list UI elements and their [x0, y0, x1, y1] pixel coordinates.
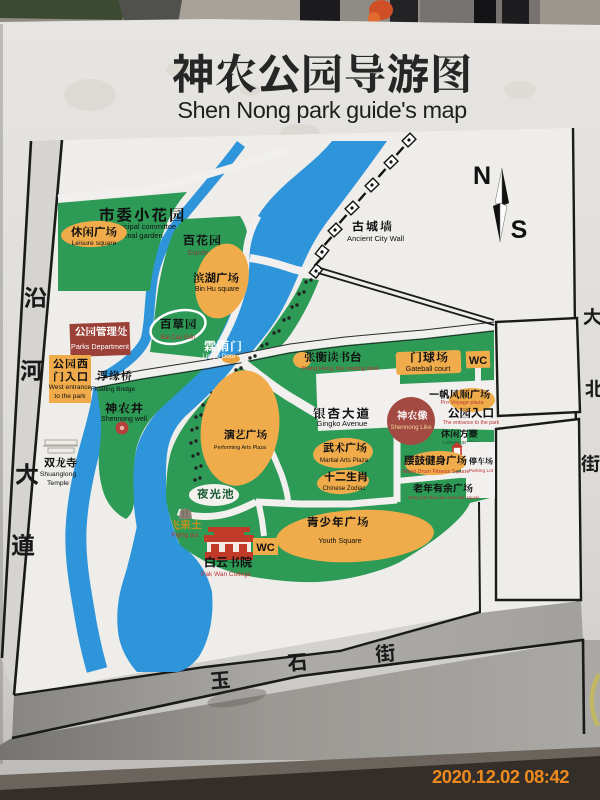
svg-text:Bai Cao Gdn: Bai Cao Gdn — [161, 335, 195, 341]
svg-text:Shuanglong: Shuanglong — [40, 471, 77, 478]
svg-text:Waist Drum Fitness Square: Waist Drum Fitness Square — [402, 469, 469, 475]
svg-text:Martial Arts Plaza: Martial Arts Plaza — [320, 457, 369, 464]
svg-text:Gingko Avenue: Gingko Avenue — [317, 419, 368, 428]
svg-text:Floating Bridge: Floating Bridge — [91, 386, 136, 393]
svg-text:Chinese Zodiac: Chinese Zodiac — [323, 485, 366, 492]
svg-text:to the park: to the park — [54, 393, 86, 400]
svg-text:Flying out: Flying out — [172, 532, 199, 539]
svg-text:smal garden: smal garden — [121, 231, 162, 240]
svg-text:Zhang Heng, the reading desk: Zhang Heng, the reading desk — [301, 366, 379, 372]
svg-text:2020.12.02 08:42: 2020.12.02 08:42 — [432, 766, 569, 787]
svg-text:Gateball court: Gateball court — [406, 364, 451, 373]
svg-text:Entry year there are more than: Entry year there are more than square — [409, 495, 481, 500]
svg-text:N: N — [473, 162, 491, 190]
svg-text:Bin Hu square: Bin Hu square — [195, 286, 239, 293]
svg-text:Ancient City Wall: Ancient City Wall — [347, 234, 404, 243]
svg-text:Parking Lot: Parking Lot — [469, 468, 494, 474]
svg-text:The entrance to the park: The entrance to the park — [443, 420, 500, 426]
svg-text:Lin yu Door: Lin yu Door — [202, 353, 236, 360]
svg-text:West entrance: West entrance — [49, 384, 92, 391]
svg-text:Shennong Like: Shennong Like — [390, 424, 432, 431]
svg-text:Pro Voyage plaza: Pro Voyage plaza — [440, 400, 484, 406]
svg-text:S: S — [511, 216, 528, 244]
svg-text:Shen Nong park guide's map: Shen Nong park guide's map — [177, 97, 467, 123]
svg-text:Parks Department: Parks Department — [71, 342, 129, 351]
svg-text:Temple: Temple — [47, 480, 69, 487]
svg-text:Youth Square: Youth Square — [318, 536, 361, 545]
svg-text:WC: WC — [256, 542, 274, 554]
svg-text:WC: WC — [469, 355, 487, 367]
svg-text:Performing Arts Plaza: Performing Arts Plaza — [214, 445, 266, 451]
svg-text:Pak Wan College: Pak Wan College — [201, 571, 251, 578]
svg-text:Leisure square: Leisure square — [72, 240, 117, 247]
